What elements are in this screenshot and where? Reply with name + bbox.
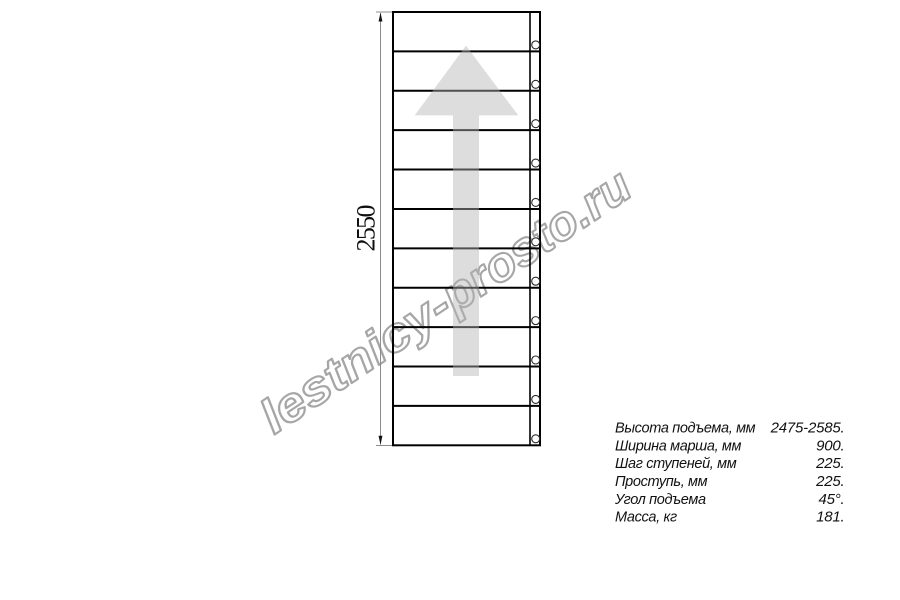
- svg-text:225.: 225.: [815, 473, 844, 490]
- svg-text:2550: 2550: [352, 205, 381, 252]
- svg-text:900.: 900.: [816, 437, 844, 454]
- svg-text:Проступь, мм: Проступь, мм: [615, 474, 708, 490]
- svg-text:Высота подъема, мм: Высота подъема, мм: [615, 421, 756, 437]
- svg-text:Угол подъема: Угол подъема: [614, 492, 706, 508]
- svg-text:2475-2585.: 2475-2585.: [770, 420, 845, 437]
- svg-text:Шаг ступеней, мм: Шаг ступеней, мм: [615, 456, 737, 472]
- svg-text:225.: 225.: [815, 455, 844, 472]
- svg-text:181.: 181.: [816, 509, 844, 526]
- svg-text:45°.: 45°.: [818, 491, 844, 508]
- svg-text:Масса, кг: Масса, кг: [615, 510, 677, 526]
- svg-text:Ширина марша, мм: Ширина марша, мм: [615, 438, 742, 454]
